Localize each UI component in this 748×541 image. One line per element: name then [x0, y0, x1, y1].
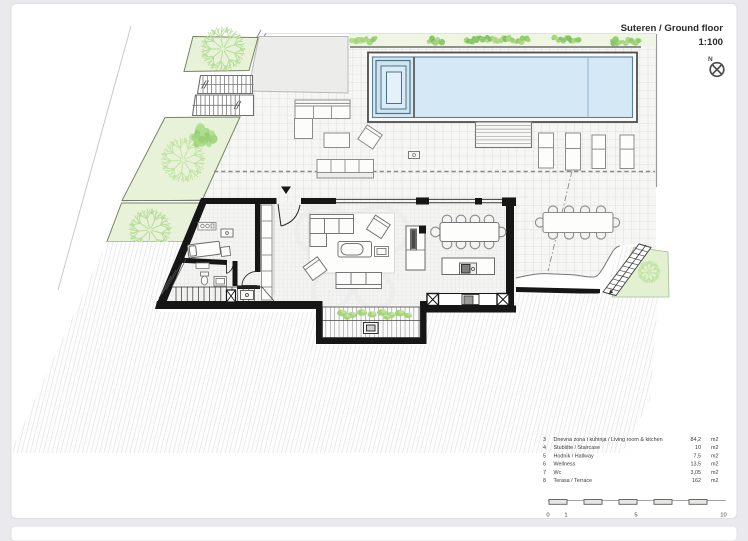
svg-text:5: 5 — [543, 453, 546, 459]
svg-text:Wc: Wc — [554, 470, 562, 476]
svg-text:m2: m2 — [711, 478, 719, 484]
svg-text:1:100: 1:100 — [698, 37, 723, 48]
svg-text:Terasa / Terrace: Terasa / Terrace — [554, 478, 593, 484]
svg-text:6: 6 — [543, 462, 546, 468]
svg-text:3: 3 — [543, 437, 546, 443]
svg-text:5: 5 — [634, 513, 637, 519]
svg-text:Hodnik / Hallway: Hodnik / Hallway — [554, 453, 594, 459]
svg-text:1: 1 — [564, 513, 567, 519]
svg-text:10: 10 — [695, 445, 701, 451]
svg-text:m2: m2 — [711, 437, 719, 443]
svg-text:8: 8 — [543, 478, 546, 484]
svg-text:10: 10 — [720, 513, 726, 519]
svg-text:3,05: 3,05 — [691, 470, 702, 476]
svg-text:4: 4 — [543, 445, 546, 451]
svg-text:m2: m2 — [711, 470, 719, 476]
svg-text:m2: m2 — [711, 445, 719, 451]
svg-text:162: 162 — [692, 478, 701, 484]
svg-text:Stubište / Staircase: Stubište / Staircase — [554, 445, 600, 451]
svg-text:0: 0 — [546, 513, 549, 519]
svg-text:m2: m2 — [711, 462, 719, 468]
svg-text:7: 7 — [543, 470, 546, 476]
svg-text:m2: m2 — [711, 453, 719, 459]
svg-text:13,5: 13,5 — [691, 462, 702, 468]
svg-text:7,5: 7,5 — [694, 453, 702, 459]
svg-text:Wellness: Wellness — [554, 462, 576, 468]
svg-text:Suteren / Ground floor: Suteren / Ground floor — [621, 23, 724, 34]
svg-text:Dnevna zona i kuhinja / Living: Dnevna zona i kuhinja / Living room & ki… — [554, 437, 663, 443]
svg-text:84,2: 84,2 — [691, 437, 702, 443]
svg-text:N: N — [708, 56, 713, 63]
